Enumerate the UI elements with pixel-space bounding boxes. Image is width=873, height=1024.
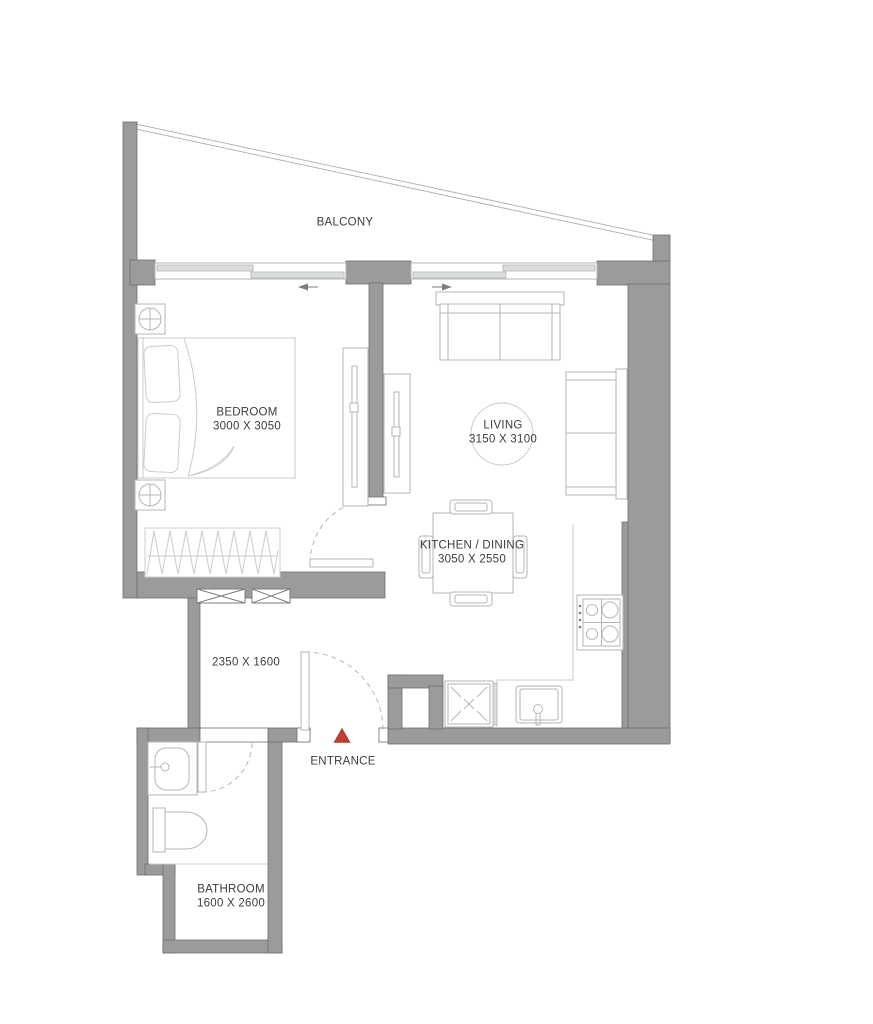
tv-console — [384, 374, 410, 493]
floor-plan: BALCONY BEDROOM 3000 X 3050 LIVING 3150 … — [0, 0, 873, 1024]
sofa-right — [566, 369, 627, 499]
bathroom-label: BATHROOM 1600 X 2600 — [197, 884, 265, 911]
wall-hall-left — [188, 598, 200, 728]
kitchen-dining-name: KITCHEN / DINING — [420, 540, 524, 554]
wall-right-top-block — [597, 261, 670, 285]
wall-balcony-post-mid — [346, 261, 411, 284]
closet-hatched — [145, 528, 280, 577]
stove — [577, 595, 623, 650]
wall-bath-right — [268, 742, 282, 953]
nightstand-top — [135, 304, 165, 334]
toilet — [153, 808, 207, 852]
bathroom-door — [198, 742, 252, 792]
bathroom-dimensions: 1600 X 2600 — [197, 897, 265, 911]
wall-left — [123, 122, 137, 598]
sliding-door-living — [411, 263, 597, 291]
wall-right — [628, 284, 670, 742]
kitchen-sink — [516, 686, 562, 725]
cap-entrance-right — [379, 728, 388, 742]
balcony-label: BALCONY — [317, 216, 374, 230]
living-label: LIVING 3150 X 3100 — [469, 420, 537, 447]
hallway-dimensions: 2350 X 1600 — [212, 656, 280, 670]
sofa-top — [436, 292, 564, 360]
floor-plan-drawing — [0, 0, 873, 1024]
bathroom-vanity — [148, 742, 197, 795]
bedroom-label: BEDROOM 3000 X 3050 — [213, 407, 281, 434]
living-name: LIVING — [469, 420, 537, 434]
frame-bathroom-door — [200, 728, 268, 742]
slide-arrow-left-icon — [298, 284, 318, 291]
wall-bedroom-partition — [369, 283, 383, 498]
shaft-box-right — [252, 589, 290, 603]
wall-balcony-pier-left — [130, 260, 155, 285]
entrance-marker-icon — [334, 729, 350, 743]
entrance-label: ENTRANCE — [310, 755, 375, 769]
shaft-box-left — [197, 589, 245, 603]
wall-bath-left — [137, 728, 148, 875]
living-dimensions: 3150 X 3100 — [469, 433, 537, 447]
sliding-door-bedroom — [155, 263, 346, 291]
slide-arrow-right-icon — [432, 284, 452, 291]
wardrobe — [343, 348, 368, 506]
bedroom-name: BEDROOM — [213, 407, 281, 421]
wall-entry-nook-right — [429, 686, 443, 729]
washing-machine — [445, 681, 497, 727]
wall-kitchen-bottom — [388, 728, 670, 744]
kitchen-dining-dimensions: 3050 X 2550 — [420, 553, 524, 567]
nightstand-bottom — [135, 480, 165, 510]
kitchen-dining-label: KITCHEN / DINING 3050 X 2550 — [420, 540, 524, 567]
wall-right-upper-end — [653, 235, 670, 262]
bedroom-door — [310, 500, 373, 567]
bedroom-dimensions: 3000 X 3050 — [213, 420, 281, 434]
entrance-door — [301, 652, 383, 730]
wall-bath-bottom — [163, 940, 282, 953]
balcony-parapet — [136, 124, 657, 241]
cap-partition-end — [366, 497, 386, 505]
bathroom-name: BATHROOM — [197, 884, 265, 898]
